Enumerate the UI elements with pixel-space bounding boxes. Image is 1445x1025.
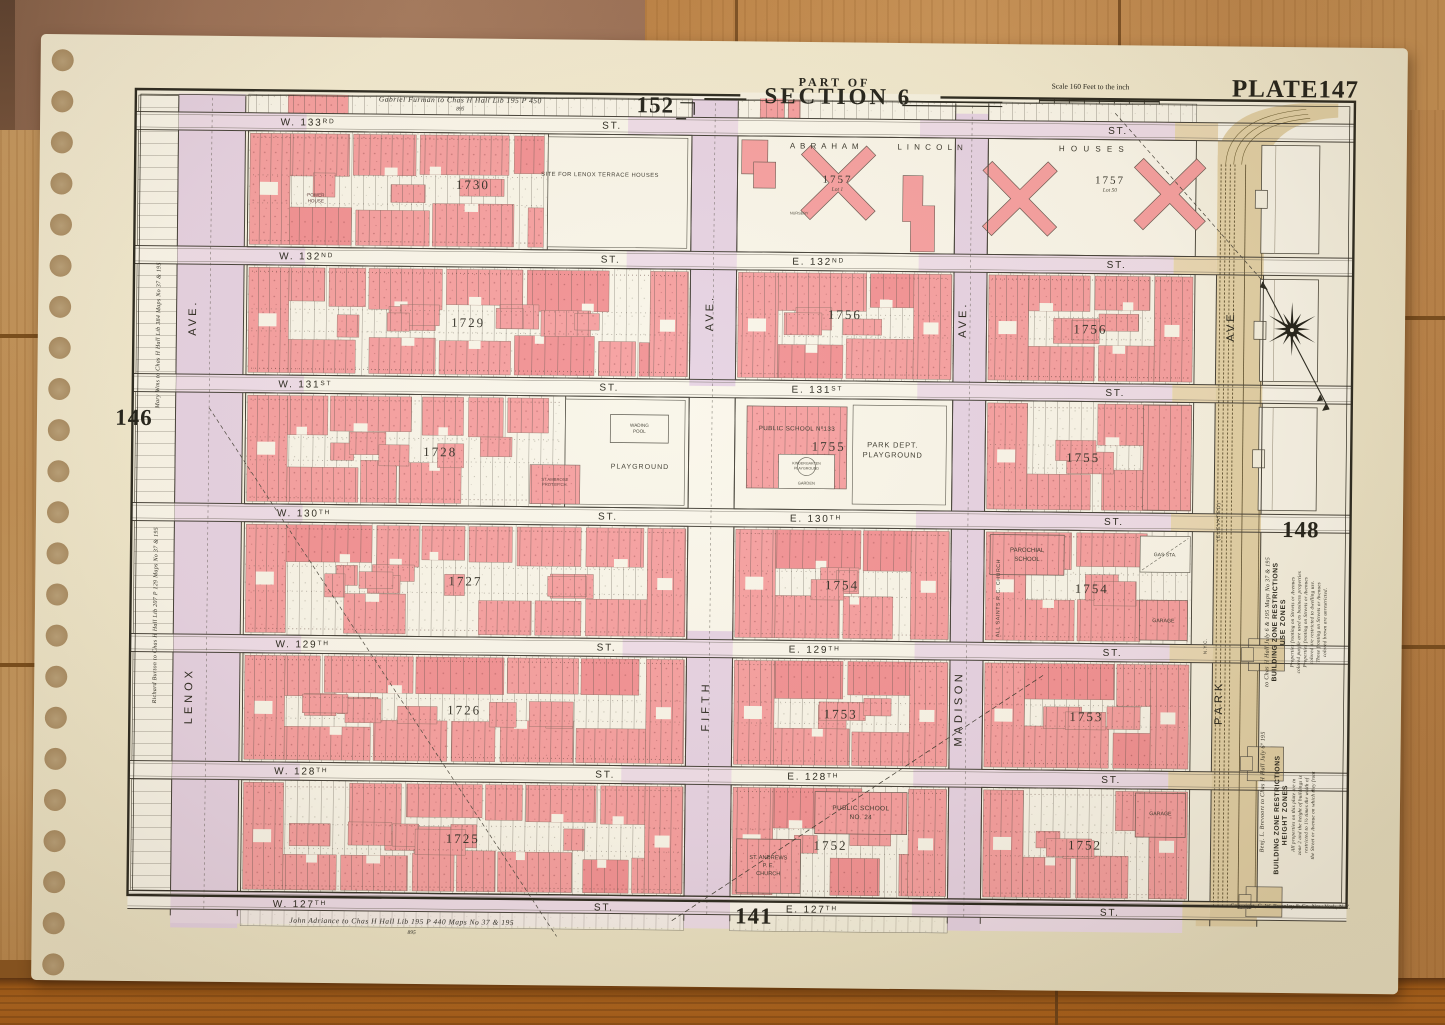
svg-text:ST.: ST. xyxy=(594,902,614,913)
svg-text:Properties fronting on Streets: Properties fronting on Streets or Avenue… xyxy=(1290,577,1296,669)
svg-text:LENOX: LENOX xyxy=(183,667,196,724)
svg-text:HOUSE: HOUSE xyxy=(308,198,324,203)
svg-text:SITE FOR LENOX TERRACE HOUSES: SITE FOR LENOX TERRACE HOUSES xyxy=(541,172,659,179)
svg-text:SECTION 6: SECTION 6 xyxy=(764,83,912,110)
svg-text:(ELEVATED): (ELEVATED) xyxy=(1216,502,1222,541)
svg-text:WADING: WADING xyxy=(630,423,649,428)
svg-text:Scale 160 Feet to the inch: Scale 160 Feet to the inch xyxy=(1052,82,1130,92)
svg-text:colored purple are used as bus: colored purple are used as business prop… xyxy=(1297,571,1303,673)
svg-text:A B R A H A M: A B R A H A M xyxy=(790,141,860,151)
svg-text:1730: 1730 xyxy=(456,177,490,192)
svg-text:ST.: ST. xyxy=(601,255,621,266)
svg-text:141: 141 xyxy=(735,903,773,928)
svg-text:1728: 1728 xyxy=(423,444,457,459)
svg-text:PLAYGROUND: PLAYGROUND xyxy=(863,450,923,460)
svg-text:All properties on this plate a: All properties on this plate are in xyxy=(1291,778,1297,853)
svg-text:ALL SAINTS R.C. CHURCH: ALL SAINTS R.C. CHURCH xyxy=(995,559,1002,637)
svg-text:1727: 1727 xyxy=(448,573,482,588)
svg-text:N.Y.C.: N.Y.C. xyxy=(1203,638,1208,654)
svg-text:ST. ANDREWS: ST. ANDREWS xyxy=(749,855,787,861)
svg-text:PLATE147: PLATE147 xyxy=(1232,75,1359,103)
svg-text:PUBLIC SCHOOL Nº133: PUBLIC SCHOOL Nº133 xyxy=(759,425,836,433)
svg-text:P. E.: P. E. xyxy=(763,863,775,869)
svg-text:1752: 1752 xyxy=(1068,837,1102,852)
svg-text:POOL: POOL xyxy=(633,429,646,434)
svg-text:ST.: ST. xyxy=(1100,908,1120,919)
svg-text:1755: 1755 xyxy=(812,439,846,454)
svg-text:895: 895 xyxy=(456,106,465,112)
svg-text:BUILDING ZONE RESTRICTIONS: BUILDING ZONE RESTRICTIONS xyxy=(1273,755,1281,874)
svg-text:FIFTH: FIFTH xyxy=(700,680,713,731)
svg-text:ST.: ST. xyxy=(599,383,619,394)
svg-text:MADISON: MADISON xyxy=(953,671,966,747)
svg-text:USE ZONES: USE ZONES xyxy=(1280,599,1287,646)
svg-text:Benj. L. Brevoort to Chas H: Benj. L. Brevoort to Chas H Hall July 6º… xyxy=(1259,731,1266,852)
svg-text:GARAGE: GARAGE xyxy=(1149,811,1172,817)
svg-text:colored are restricted to dwel: colored are restricted to dwelling use. xyxy=(1310,581,1316,665)
svg-text:PAROCHIAL: PAROCHIAL xyxy=(1010,548,1045,554)
svg-text:1757: 1757 xyxy=(1095,175,1125,187)
svg-text:ST.: ST. xyxy=(597,643,617,654)
svg-text:NURSERY: NURSERY xyxy=(790,211,809,215)
svg-text:Lot 1: Lot 1 xyxy=(831,187,844,193)
svg-text:1755: 1755 xyxy=(1066,450,1100,465)
svg-text:1756: 1756 xyxy=(1073,321,1107,336)
svg-text:CHURCH: CHURCH xyxy=(756,871,780,877)
svg-text:ST.: ST. xyxy=(595,770,615,781)
svg-text:ST.: ST. xyxy=(602,121,622,132)
svg-text:ST.: ST. xyxy=(1103,648,1123,659)
svg-text:ST.: ST. xyxy=(1107,260,1127,271)
svg-text:zone 2 and the height of build: zone 2 and the height of buildings is xyxy=(1298,775,1304,856)
svg-text:1729: 1729 xyxy=(451,315,485,330)
svg-text:AVE.: AVE. xyxy=(957,301,969,337)
svg-text:GARDEN: GARDEN xyxy=(798,480,815,485)
svg-text:ST.: ST. xyxy=(1104,517,1124,528)
svg-text:1756: 1756 xyxy=(828,307,862,322)
svg-text:PLAYGROUND: PLAYGROUND xyxy=(611,463,670,471)
svg-text:ST.: ST. xyxy=(1101,775,1121,786)
svg-text:Those fronting on Streets or A: Those fronting on Streets or Avenues xyxy=(1316,582,1322,663)
svg-text:AVE.: AVE. xyxy=(187,299,199,335)
svg-text:AVE.: AVE. xyxy=(1225,305,1237,341)
svg-text:146: 146 xyxy=(115,405,153,430)
svg-text:ST.: ST. xyxy=(598,512,618,523)
svg-text:Properties fronting on Streets: Properties fronting on Streets or Avenue… xyxy=(1303,577,1309,669)
svg-text:895: 895 xyxy=(407,930,416,936)
svg-text:1753: 1753 xyxy=(1069,709,1103,724)
svg-text:Lot 50: Lot 50 xyxy=(1102,188,1118,194)
svg-text:restricted to 1½ times the wid: restricted to 1½ times the width of xyxy=(1304,777,1310,853)
svg-text:SCHOOL: SCHOOL xyxy=(1014,557,1040,563)
svg-text:PARK DEPT.: PARK DEPT. xyxy=(867,440,918,450)
svg-text:1725: 1725 xyxy=(446,831,480,846)
svg-text:BUILDING ZONE RESTRICTIONS: BUILDING ZONE RESTRICTIONS xyxy=(1271,562,1279,681)
svg-text:H O U S E S: H O U S E S xyxy=(1059,144,1126,154)
svg-text:HEIGHT ZONES: HEIGHT ZONES xyxy=(1282,785,1290,846)
svg-text:152: 152 xyxy=(636,92,674,117)
svg-text:KINDERGARTEN: KINDERGARTEN xyxy=(792,461,821,465)
svg-text:148: 148 xyxy=(1282,517,1320,542)
svg-text:ST.: ST. xyxy=(1105,388,1125,399)
svg-text:1754: 1754 xyxy=(825,577,859,592)
svg-text:1753: 1753 xyxy=(824,706,858,721)
svg-text:POWER: POWER xyxy=(307,192,325,197)
svg-text:PROT.EP.CH.: PROT.EP.CH. xyxy=(542,482,568,487)
svg-text:Gabriel Furman to Chas H Hall: Gabriel Furman to Chas H Hall Lib 195 P … xyxy=(379,95,542,106)
svg-text:the Street or Avenue on which: the Street or Avenue on which they front xyxy=(1311,771,1317,859)
svg-text:L I N C O L N: L I N C O L N xyxy=(897,142,964,152)
svg-text:colored brown are unrestricted: colored brown are unrestricted. xyxy=(1323,588,1329,657)
svg-text:1754: 1754 xyxy=(1075,581,1109,596)
svg-text:GARAGE: GARAGE xyxy=(1152,618,1175,624)
svg-text:NO. 24: NO. 24 xyxy=(849,814,872,821)
svg-text:GAS STA.: GAS STA. xyxy=(1154,552,1177,558)
svg-text:PLAYGROUND: PLAYGROUND xyxy=(794,466,819,470)
svg-text:1752: 1752 xyxy=(813,838,847,853)
svg-text:Copyright, G. W. Bromley & Co.: Copyright, G. W. Bromley & Co. New York,… xyxy=(1230,904,1350,911)
svg-text:1757: 1757 xyxy=(822,174,852,186)
svg-text:ST.: ST. xyxy=(1108,126,1128,137)
svg-text:1726: 1726 xyxy=(447,702,481,717)
svg-text:AVE.: AVE. xyxy=(704,295,716,331)
svg-text:PARK: PARK xyxy=(1213,680,1225,725)
